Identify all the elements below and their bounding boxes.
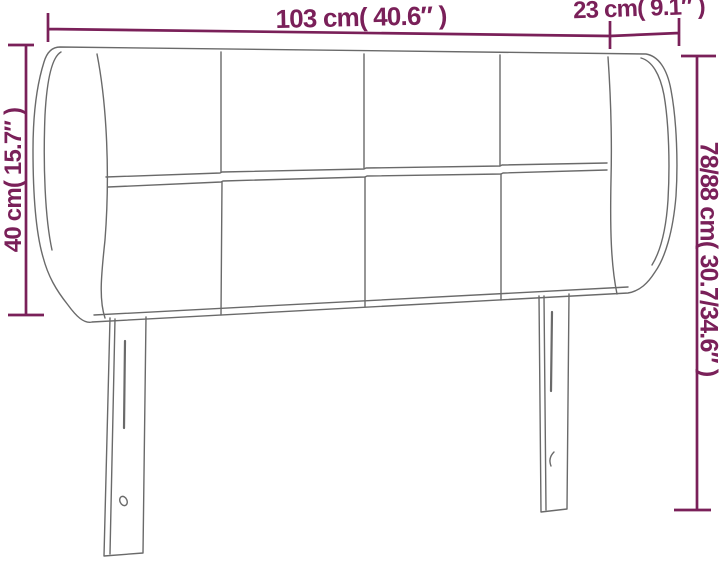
tufting-seam-horizontal-lower — [108, 170, 607, 187]
tufting-seam-vertical-3 — [500, 55, 501, 300]
dimension-label-wing: 23 cm( 9.1″ ) — [573, 0, 706, 23]
right-leg-slot — [551, 312, 552, 391]
headboard-line-art — [0, 0, 720, 566]
left-leg-slot — [124, 341, 125, 428]
tufting-seam-horizontal-upper — [106, 163, 607, 177]
dimension-label-height-right: 78/88 cm( 30.7/34.6″ ) — [696, 142, 720, 377]
left-wing-inner-curve — [97, 54, 107, 318]
right-wing-inner-curve — [608, 57, 617, 294]
left-wing-roll-line — [44, 52, 61, 250]
right-leg — [539, 294, 569, 512]
dimension-diagram: 103 cm( 40.6″ ) 23 cm( 9.1″ ) 40 cm( 15.… — [0, 0, 720, 566]
right-leg-hook-mark — [550, 452, 554, 466]
tufting-seam-vertical-1 — [221, 52, 222, 315]
bottom-panel-seam — [94, 287, 628, 315]
left-leg-edge-line — [110, 319, 115, 554]
right-leg-edge-line — [544, 296, 546, 510]
headboard-outline — [33, 47, 677, 322]
dimension-label-height-left: 40 cm( 15.7″ ) — [2, 108, 26, 252]
tufting-seam-vertical-2 — [364, 54, 365, 307]
right-wing-roll-line — [641, 58, 669, 265]
left-leg-bolt-hole — [118, 495, 128, 507]
dimension-label-width: 103 cm( 40.6″ ) — [275, 2, 447, 32]
